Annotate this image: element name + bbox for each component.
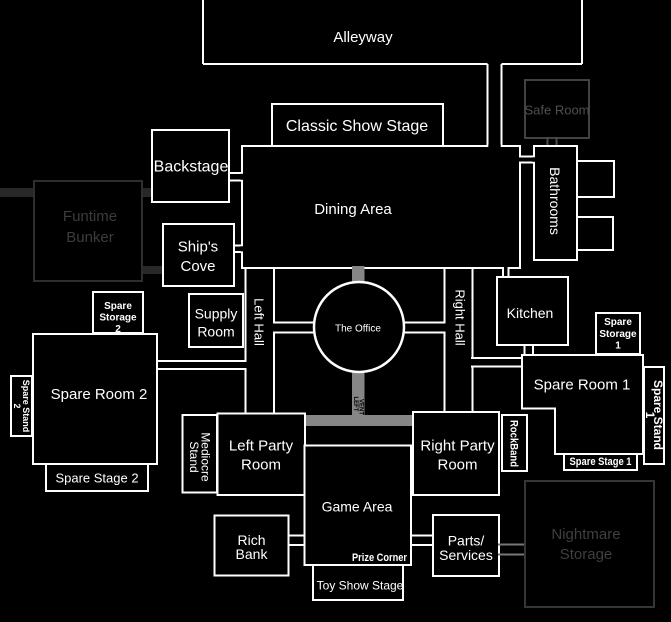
svg-text:Nightmare: Nightmare bbox=[551, 526, 620, 543]
svg-text:Spare: Spare bbox=[604, 317, 632, 328]
svg-text:Room: Room bbox=[241, 457, 281, 474]
svg-text:Spare Stage 1: Spare Stage 1 bbox=[570, 456, 632, 468]
svg-text:The Office: The Office bbox=[335, 324, 381, 335]
svg-text:Backstage: Backstage bbox=[154, 159, 229, 176]
svg-text:Stand: Stand bbox=[187, 441, 201, 472]
svg-text:Room: Room bbox=[197, 323, 234, 339]
svg-text:Dining Area: Dining Area bbox=[314, 201, 392, 218]
svg-text:Bank: Bank bbox=[236, 546, 269, 562]
svg-text:Cove: Cove bbox=[180, 258, 215, 275]
svg-text:Kitchen: Kitchen bbox=[507, 305, 554, 321]
svg-text:Funtime: Funtime bbox=[63, 208, 117, 225]
svg-text:Right Party: Right Party bbox=[420, 438, 495, 455]
svg-text:Toy Show Stage: Toy Show Stage bbox=[317, 579, 404, 593]
svg-text:2: 2 bbox=[12, 403, 22, 408]
svg-text:1: 1 bbox=[643, 412, 657, 419]
svg-text:LEFT: LEFT bbox=[352, 397, 358, 412]
svg-text:Services: Services bbox=[439, 547, 493, 563]
svg-text:Storage: Storage bbox=[99, 312, 137, 323]
svg-text:Spare Room 2: Spare Room 2 bbox=[51, 386, 148, 403]
svg-text:Bunker: Bunker bbox=[66, 229, 114, 246]
svg-text:Storage: Storage bbox=[560, 546, 613, 563]
svg-text:Classic Show Stage: Classic Show Stage bbox=[286, 118, 428, 135]
svg-text:Ship's: Ship's bbox=[178, 239, 218, 256]
svg-text:Supply: Supply bbox=[195, 305, 238, 321]
svg-text:1: 1 bbox=[615, 340, 621, 351]
svg-text:Left Party: Left Party bbox=[229, 438, 294, 455]
svg-text:Spare: Spare bbox=[104, 301, 132, 312]
svg-text:Storage: Storage bbox=[599, 329, 637, 340]
svg-text:Game Area: Game Area bbox=[322, 498, 393, 514]
svg-text:Alleyway: Alleyway bbox=[333, 29, 393, 46]
svg-text:VENT: VENT bbox=[357, 399, 363, 415]
svg-text:Spare Stage 2: Spare Stage 2 bbox=[55, 470, 138, 485]
svg-text:Safe Room: Safe Room bbox=[524, 103, 589, 118]
svg-text:Spare Room 1: Spare Room 1 bbox=[534, 376, 631, 393]
svg-text:RockBand: RockBand bbox=[508, 420, 520, 467]
svg-text:Bathrooms: Bathrooms bbox=[547, 167, 563, 235]
svg-text:Right Hall: Right Hall bbox=[452, 289, 467, 345]
svg-text:Prize Corner: Prize Corner bbox=[352, 552, 408, 564]
svg-text:Left Hall: Left Hall bbox=[251, 298, 266, 346]
svg-text:Room: Room bbox=[437, 457, 477, 474]
